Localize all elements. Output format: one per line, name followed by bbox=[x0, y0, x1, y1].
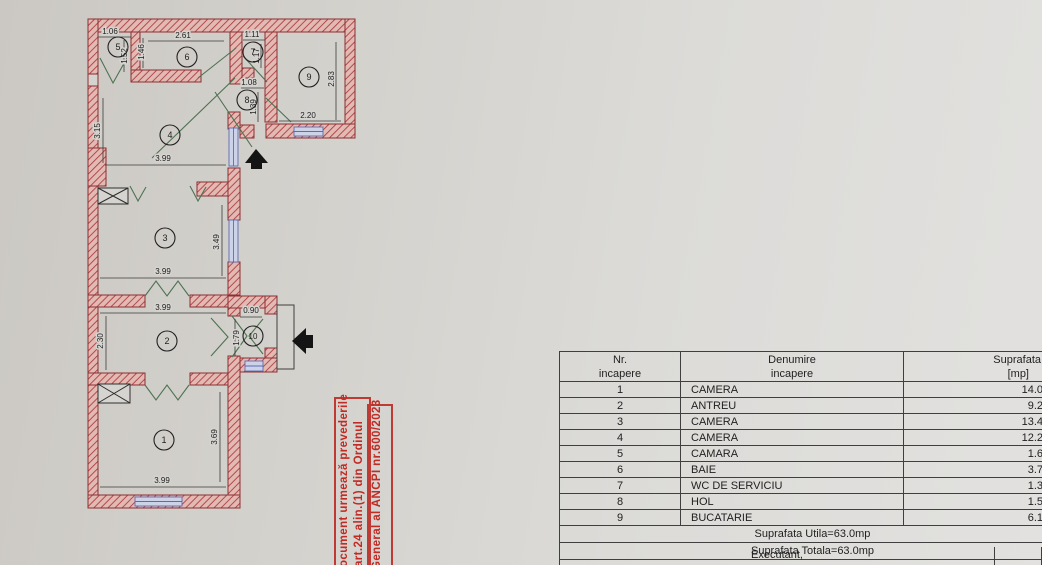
walls bbox=[88, 19, 355, 508]
room-number: 9 bbox=[306, 72, 311, 82]
room-name-cell: ANTREU bbox=[681, 398, 904, 414]
table-row: 6 BAIE 3.7 bbox=[560, 462, 1042, 478]
room-nr-cell: 9 bbox=[560, 510, 681, 526]
room-nr-cell: 6 bbox=[560, 462, 681, 478]
room-nr-cell: 5 bbox=[560, 446, 681, 462]
total-utila-cell: Suprafata Utila=63.0mp bbox=[560, 526, 1042, 543]
table-row: 3 CAMERA 13.4 bbox=[560, 414, 1042, 430]
total-utila-row: Suprafata Utila=63.0mp bbox=[560, 526, 1042, 543]
executant-cell: Executant, bbox=[560, 547, 995, 565]
room-number: 5 bbox=[115, 42, 120, 52]
dim-label: 2.30 bbox=[96, 333, 105, 349]
room-number: 7 bbox=[250, 47, 255, 57]
stamp-text-line: art.24 alin.(1) din Ordinul bbox=[353, 421, 365, 565]
room-name-cell: HOL bbox=[681, 494, 904, 510]
dim-label: 3.99 bbox=[155, 303, 171, 312]
room-area-cell: 1.3 bbox=[904, 478, 1042, 494]
dim-label: 3.99 bbox=[154, 476, 170, 485]
table-header-row: Nr.incapere Denumireincapere Suprafata[m… bbox=[560, 352, 1042, 382]
dim-label: 1.79 bbox=[232, 330, 241, 346]
room-area-cell: 13.4 bbox=[904, 414, 1042, 430]
room-area-cell: 14.0 bbox=[904, 382, 1042, 398]
room-nr-cell: 4 bbox=[560, 430, 681, 446]
room-number: 10 bbox=[249, 332, 258, 341]
dim-label: 2.61 bbox=[175, 31, 191, 40]
room-area-cell: 6.1 bbox=[904, 510, 1042, 526]
dim-label: 1.08 bbox=[241, 78, 257, 87]
room-name-cell: BUCATARIE bbox=[681, 510, 904, 526]
scanned-floor-plan-document: 1.06 1.52 1.46 2.61 1.11 1.17 1.08 1.39 … bbox=[0, 0, 1042, 565]
table-row: 9 BUCATARIE 6.1 bbox=[560, 510, 1042, 526]
stamp-text-line: General al ANCPI nr.600/2023 bbox=[371, 399, 383, 565]
entrance-arrow-up-icon bbox=[245, 149, 268, 169]
room-nr-cell: 2 bbox=[560, 398, 681, 414]
room-nr-cell: 7 bbox=[560, 478, 681, 494]
room-name-cell: CAMARA bbox=[681, 446, 904, 462]
dim-label: 2.20 bbox=[300, 111, 316, 120]
room-name-cell: CAMERA bbox=[681, 430, 904, 446]
stamp-text-line: ocument urmează prevederile bbox=[338, 394, 350, 565]
table-row: 7 WC DE SERVICIU 1.3 bbox=[560, 478, 1042, 494]
dim-label: 3.99 bbox=[155, 154, 171, 163]
dim-label: 1.46 bbox=[137, 44, 146, 60]
entrance-steps bbox=[277, 305, 294, 369]
room-name-cell: BAIE bbox=[681, 462, 904, 478]
dim-label: 2.83 bbox=[327, 71, 336, 87]
dim-label: 3.69 bbox=[210, 429, 219, 445]
table-footer-row: Executant, bbox=[559, 547, 1042, 565]
room-number: 3 bbox=[162, 233, 167, 243]
dimension-lines bbox=[98, 37, 341, 487]
room-area-cell: 12.2 bbox=[904, 430, 1042, 446]
entrance-arrow-left-icon bbox=[292, 328, 313, 354]
wall-opening bbox=[88, 74, 98, 86]
dim-label: 0.90 bbox=[243, 306, 259, 315]
room-number: 8 bbox=[244, 95, 249, 105]
header-denumire-incapere: Denumireincapere bbox=[681, 352, 904, 382]
dim-label: 1.11 bbox=[245, 30, 261, 39]
table-row: 8 HOL 1.5 bbox=[560, 494, 1042, 510]
header-suprafata-mp: Suprafata[mp] bbox=[904, 352, 1042, 382]
dim-label: 1.06 bbox=[102, 27, 118, 36]
room-nr-cell: 3 bbox=[560, 414, 681, 430]
door-swings bbox=[100, 48, 291, 400]
footer-empty-cell bbox=[995, 547, 1041, 565]
room-nr-cell: 1 bbox=[560, 382, 681, 398]
room-number: 1 bbox=[161, 435, 166, 445]
room-name-cell: CAMERA bbox=[681, 382, 904, 398]
room-area-cell: 1.6 bbox=[904, 446, 1042, 462]
table-row: 1 CAMERA 14.0 bbox=[560, 382, 1042, 398]
header-nr-incapere: Nr.incapere bbox=[560, 352, 681, 382]
room-number: 4 bbox=[167, 130, 172, 140]
dim-label: 3.99 bbox=[155, 267, 171, 276]
room-number: 6 bbox=[184, 52, 189, 62]
room-area-cell: 1.5 bbox=[904, 494, 1042, 510]
dim-label: 3.15 bbox=[93, 123, 102, 139]
room-area-cell: 3.7 bbox=[904, 462, 1042, 478]
room-area-table: Nr.incapere Denumireincapere Suprafata[m… bbox=[559, 351, 1042, 560]
room-name-cell: CAMERA bbox=[681, 414, 904, 430]
room-name-cell: WC DE SERVICIU bbox=[681, 478, 904, 494]
room-area-cell: 9.2 bbox=[904, 398, 1042, 414]
table-row: 4 CAMERA 12.2 bbox=[560, 430, 1042, 446]
table-row: 2 ANTREU 9.2 bbox=[560, 398, 1042, 414]
room-nr-cell: 8 bbox=[560, 494, 681, 510]
dim-label: 3.49 bbox=[212, 234, 221, 250]
table-row: 5 CAMARA 1.6 bbox=[560, 446, 1042, 462]
room-number: 2 bbox=[164, 336, 169, 346]
